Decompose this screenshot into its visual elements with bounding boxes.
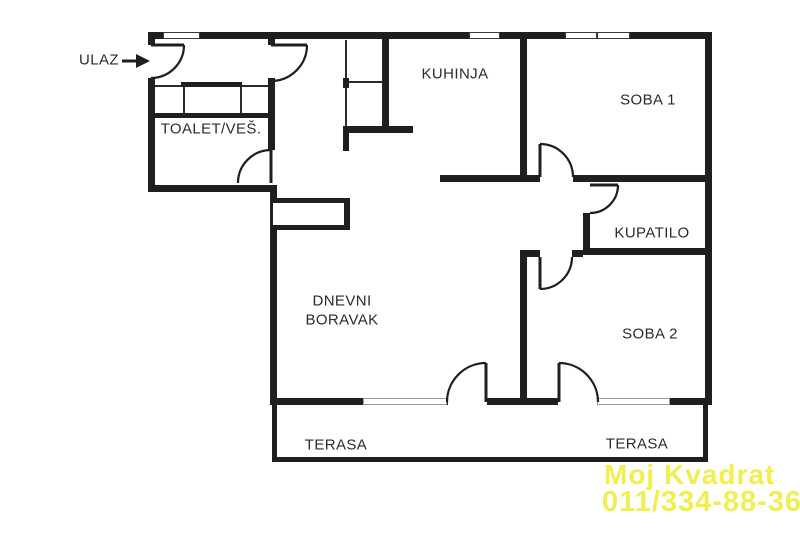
wall-left-lower (148, 78, 155, 192)
room-label-soba1: SOBA 1 (620, 92, 676, 111)
hall-fixture-bottom (155, 113, 270, 118)
room-label-dnevni-boravak: DNEVNI BORAVAK (305, 292, 378, 330)
entrance-label: ULAZ (79, 52, 119, 71)
window-hall (163, 32, 200, 39)
wall-kitchen-living (440, 175, 520, 182)
wall-soba1-bottom-seg1 (527, 175, 540, 182)
wall-living-soba2 (520, 250, 527, 405)
entrance-arrow-icon (136, 54, 150, 68)
room-label-terasa-right: TERASA (606, 436, 668, 455)
door-arc-toalet (238, 150, 271, 183)
doors-layer (0, 0, 800, 533)
room-label-kupatilo: KUPATILO (614, 225, 689, 244)
room-label-kuhinja: KUHINJA (422, 66, 489, 85)
door-arc-hall (271, 45, 307, 81)
room-label-toalet: TOALET/VEŠ. (161, 121, 262, 140)
room-label-dnevni-line1: DNEVNI (305, 292, 378, 311)
corridor-closet-shelf-line (345, 81, 383, 83)
wall-hall-divider-top (268, 39, 275, 45)
wall-kupatilo-left (583, 213, 590, 252)
wall-toalet-bottom (148, 185, 277, 192)
wall-kitchen-soba1 (520, 33, 527, 182)
window-soba1-left (565, 32, 597, 39)
window-soba2-terrace (597, 398, 670, 405)
window-kitchen (469, 32, 500, 39)
wall-peninsula-stub (343, 126, 349, 151)
floor-plan: ULAZ TOALET/VEŠ. KUHINJA SOBA 1 KUPATILO… (0, 0, 800, 533)
door-arc-soba1 (540, 144, 573, 177)
hall-fixture-counter (181, 82, 242, 87)
room-label-soba2: SOBA 2 (622, 326, 678, 345)
wall-kupatilo-bottom (583, 248, 712, 255)
door-arc-kupatilo (590, 185, 618, 213)
corridor-closet-nub (343, 78, 349, 88)
door-arc-entrance (151, 45, 184, 78)
wall-kitchen-peninsula (346, 126, 413, 133)
wall-left-upper (148, 32, 155, 45)
wall-right (705, 32, 712, 405)
living-room-wardrobe (273, 198, 350, 230)
wall-soba2-top-seg2 (572, 250, 583, 257)
window-soba1-right (597, 32, 630, 39)
hall-fixture-divider-1 (183, 85, 185, 113)
wall-soba1-bottom-seg2 (573, 175, 705, 182)
window-living-terrace (363, 398, 447, 405)
door-arc-soba2-balcony (559, 363, 598, 402)
wall-terrace-left (272, 405, 277, 462)
door-arc-living-balcony (447, 363, 486, 402)
watermark-line2: 011/334-88-36 (602, 486, 800, 519)
room-label-terasa-left: TERASA (305, 437, 367, 456)
room-label-dnevni-line2: BORAVAK (305, 311, 378, 330)
wall-terrace-right (703, 405, 708, 462)
hall-fixture-divider-2 (240, 85, 242, 113)
wall-kitchen-left (382, 33, 389, 133)
door-arc-soba2 (540, 257, 572, 289)
